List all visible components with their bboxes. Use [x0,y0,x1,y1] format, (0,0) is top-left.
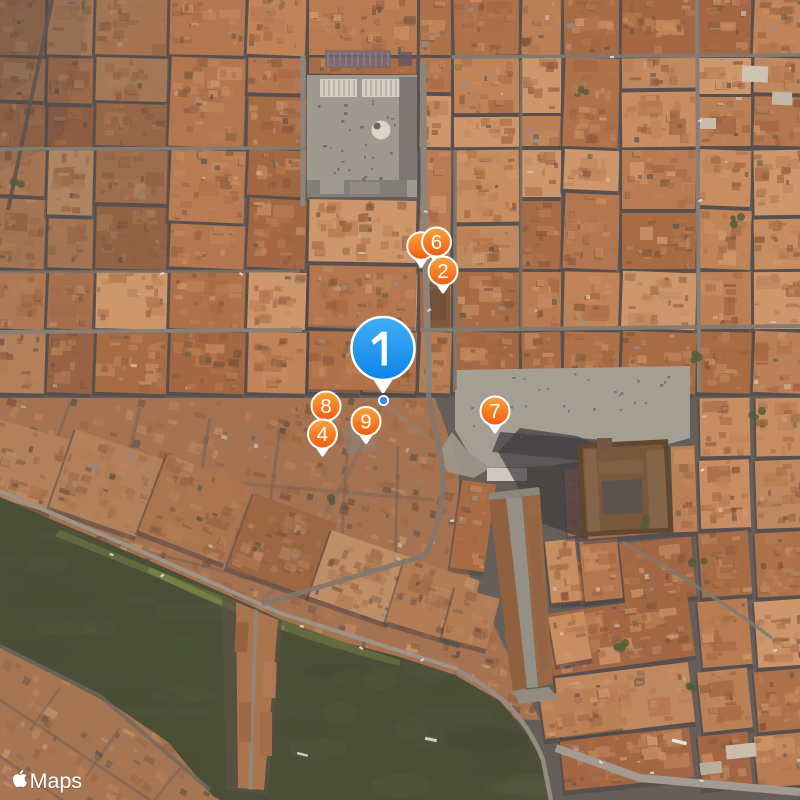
svg-text:9: 9 [360,411,371,434]
svg-text:4: 4 [317,423,328,446]
svg-text:7: 7 [489,400,500,423]
svg-text:2: 2 [437,260,448,283]
svg-text:Maps: Maps [30,769,83,793]
svg-text:6: 6 [431,231,442,254]
svg-text:8: 8 [320,395,331,418]
